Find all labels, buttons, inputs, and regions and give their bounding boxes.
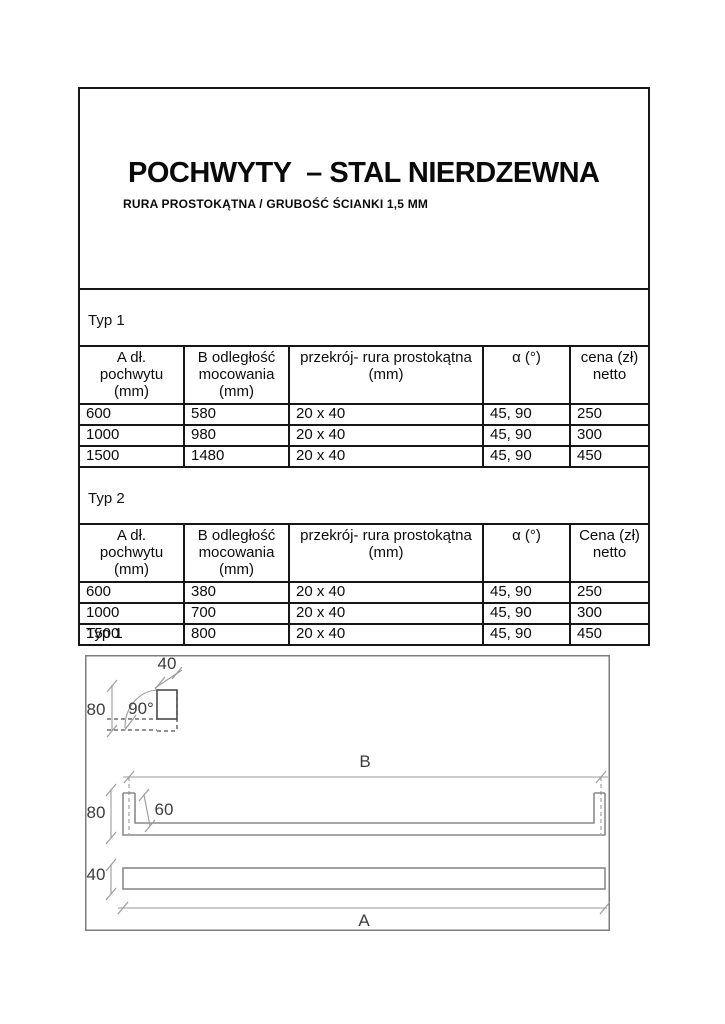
col-header: B odległość mocowania (mm) bbox=[184, 524, 289, 582]
dim-detail-height-label: 80 bbox=[87, 700, 106, 719]
table-cell: 700 bbox=[184, 603, 289, 624]
table-cell: 980 bbox=[184, 425, 289, 446]
page-subtitle: RURA PROSTOKĄTNA / GRUBOŚĆ ŚCIANKI 1,5 M… bbox=[80, 197, 648, 211]
table-cell: 380 bbox=[184, 582, 289, 603]
top-view: 40 A bbox=[87, 859, 610, 930]
col-header: A dł. pochwytu (mm) bbox=[80, 524, 184, 582]
table-cell: 20 x 40 bbox=[289, 404, 483, 425]
table-cell: 45, 90 bbox=[483, 404, 570, 425]
table-header-row: A dł. pochwytu (mm) B odległość mocowani… bbox=[80, 346, 648, 404]
table-cell: 600 bbox=[80, 404, 184, 425]
col-header: cena (zł) netto bbox=[570, 346, 648, 404]
table-cell: 450 bbox=[570, 446, 648, 467]
table-cell: 1000 bbox=[80, 425, 184, 446]
table-header-row: A dł. pochwytu (mm) B odległość mocowani… bbox=[80, 524, 648, 582]
table-row: 1000 700 20 x 40 45, 90 300 bbox=[80, 603, 648, 624]
front-view: B 80 60 bbox=[87, 752, 608, 844]
table-row: 1500 1480 20 x 40 45, 90 450 bbox=[80, 446, 648, 467]
table-cell: 20 x 40 bbox=[289, 603, 483, 624]
document-page: POCHWYTY – STAL NIERDZEWNA RURA PROSTOKĄ… bbox=[0, 0, 725, 1024]
content-box: POCHWYTY – STAL NIERDZEWNA RURA PROSTOKĄ… bbox=[78, 87, 650, 646]
detail-view: 40 80 90° bbox=[87, 655, 182, 737]
table-cell: 20 x 40 bbox=[289, 582, 483, 603]
table-cell: 600 bbox=[80, 582, 184, 603]
table-row: 600 380 20 x 40 45, 90 250 bbox=[80, 582, 648, 603]
table-row: 1000 980 20 x 40 45, 90 300 bbox=[80, 425, 648, 446]
col-header: α (°) bbox=[483, 346, 570, 404]
section-label-typ2: Typ 2 bbox=[80, 468, 648, 523]
page-title: POCHWYTY – STAL NIERDZEWNA bbox=[80, 157, 648, 189]
table-cell: 45, 90 bbox=[483, 425, 570, 446]
dim-detail-width-label: 40 bbox=[158, 655, 177, 673]
table-cell: 580 bbox=[184, 404, 289, 425]
table-cell: 20 x 40 bbox=[289, 425, 483, 446]
table-cell: 1000 bbox=[80, 603, 184, 624]
table-cell: 300 bbox=[570, 425, 648, 446]
spec-table-typ2: A dł. pochwytu (mm) B odległość mocowani… bbox=[80, 523, 648, 644]
table-cell: 20 x 40 bbox=[289, 446, 483, 467]
table-cell: 20 x 40 bbox=[289, 624, 483, 644]
section-label-typ1: Typ 1 bbox=[80, 290, 648, 345]
col-header: A dł. pochwytu (mm) bbox=[80, 346, 184, 404]
dim-length-label: A bbox=[358, 911, 370, 930]
table-cell: 250 bbox=[570, 404, 648, 425]
table-row: 1500 800 20 x 40 45, 90 450 bbox=[80, 624, 648, 644]
drawing-caption: Typ 1 bbox=[86, 625, 123, 642]
dim-span-label: B bbox=[359, 752, 370, 771]
table-cell: 45, 90 bbox=[483, 582, 570, 603]
col-header: α (°) bbox=[483, 524, 570, 582]
col-header: przekrój- rura prostokątna (mm) bbox=[289, 346, 483, 404]
dim-bar-height-label: 40 bbox=[87, 865, 106, 884]
technical-drawing: 40 80 90° B 80 60 40 bbox=[85, 655, 610, 931]
dim-inner-height-label: 60 bbox=[155, 800, 174, 819]
title-section: POCHWYTY – STAL NIERDZEWNA RURA PROSTOKĄ… bbox=[80, 89, 648, 290]
table-cell: 250 bbox=[570, 582, 648, 603]
dim-angle-label: 90° bbox=[128, 699, 154, 718]
table-cell: 1480 bbox=[184, 446, 289, 467]
dim-side-height-label: 80 bbox=[87, 803, 106, 822]
table-cell: 800 bbox=[184, 624, 289, 644]
table-row: 600 580 20 x 40 45, 90 250 bbox=[80, 404, 648, 425]
table-cell: 450 bbox=[570, 624, 648, 644]
table-cell: 300 bbox=[570, 603, 648, 624]
col-header: B odległość mocowania (mm) bbox=[184, 346, 289, 404]
table-cell: 45, 90 bbox=[483, 446, 570, 467]
table-cell: 45, 90 bbox=[483, 603, 570, 624]
spec-table-typ1: A dł. pochwytu (mm) B odległość mocowani… bbox=[80, 345, 648, 468]
table-cell: 45, 90 bbox=[483, 624, 570, 644]
col-header: przekrój- rura prostokątna (mm) bbox=[289, 524, 483, 582]
col-header: Cena (zł) netto bbox=[570, 524, 648, 582]
table-cell: 1500 bbox=[80, 446, 184, 467]
